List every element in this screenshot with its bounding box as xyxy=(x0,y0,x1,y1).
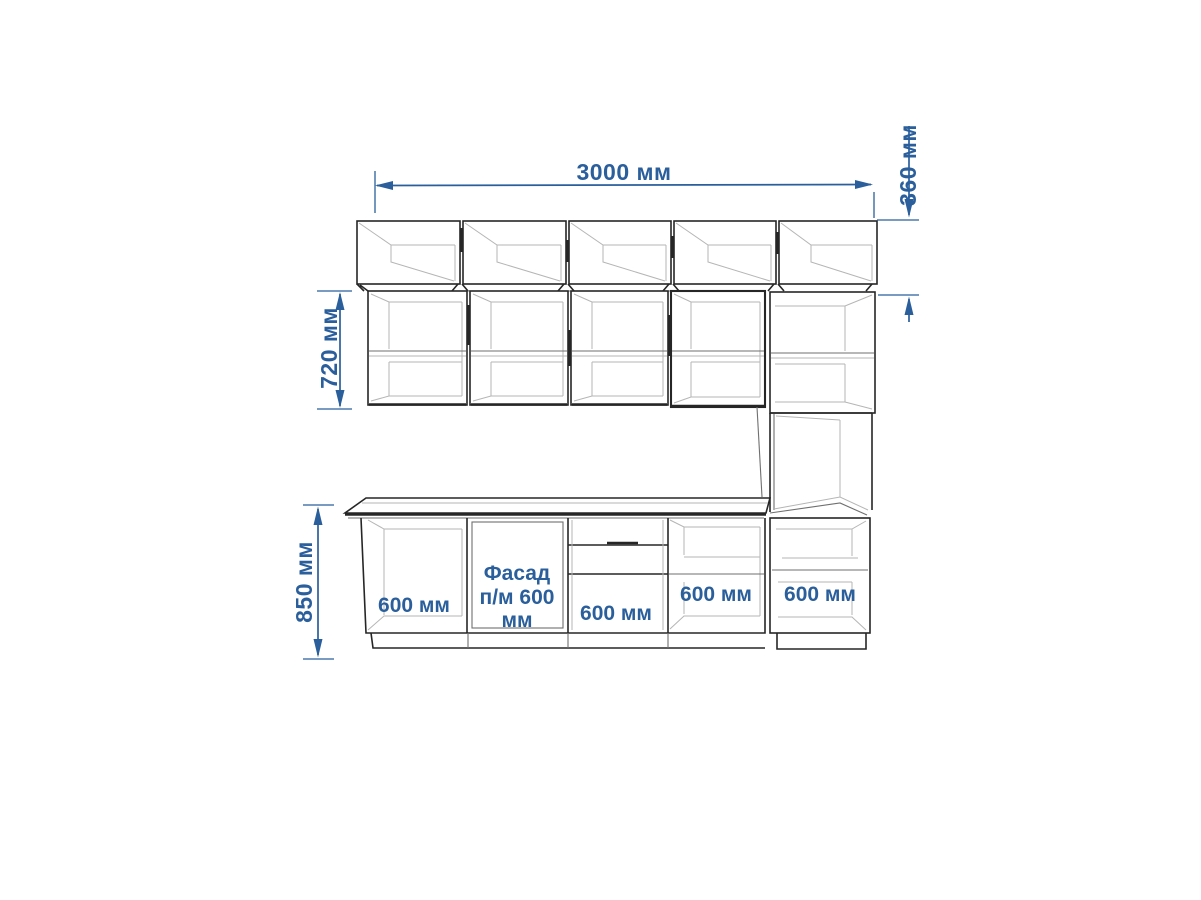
base-plinth xyxy=(371,633,765,648)
dimension-label-360: 360 мм xyxy=(895,124,921,206)
drawing-canvas: 600 мм 600 мм Фасад п/м 600 мм xyxy=(0,0,1201,900)
countertop xyxy=(345,498,770,518)
dimension-total-width: 3000 мм xyxy=(375,159,874,218)
top-cabinet-box xyxy=(463,221,566,284)
dimension-label-850: 850 мм xyxy=(291,541,317,623)
top-cabinet-box xyxy=(779,221,877,284)
arrow-up-icon xyxy=(314,507,323,526)
top-cabinet-box xyxy=(569,221,671,284)
label-base-section-3: 600 мм xyxy=(580,602,652,625)
base-section-drawers: 600 мм xyxy=(568,520,668,630)
top-cabinet-box xyxy=(674,221,776,284)
wall-cabinet xyxy=(470,291,568,405)
label-base-section-4: 600 мм xyxy=(680,583,752,606)
label-column-base: 600 мм xyxy=(784,583,856,606)
arrow-right-icon xyxy=(855,180,873,189)
column-side-edge xyxy=(757,407,762,497)
wall-cabinet xyxy=(368,291,467,405)
tall-column: 600 мм xyxy=(757,292,875,649)
dimension-top-cabinet-height: 360 мм xyxy=(877,124,921,322)
arrow-down-icon xyxy=(314,639,323,658)
wall-cabinet-door xyxy=(671,291,765,407)
base-cabinet-row: 600 мм Фасад п/м 600 мм 600 мм 600 мм xyxy=(361,518,765,648)
wall-cabinet-row xyxy=(368,291,765,407)
arrow-down-icon xyxy=(905,199,914,218)
base-section-shelf: 600 мм xyxy=(669,520,764,629)
column-base-cabinet: 600 мм xyxy=(770,503,870,633)
kitchen-elevation-drawing: 600 мм 600 мм Фасад п/м 600 мм xyxy=(0,0,1201,900)
dimension-label-720: 720 мм xyxy=(316,307,342,389)
column-open-niche xyxy=(770,413,872,512)
label-base-section-1: 600 мм xyxy=(378,594,450,617)
column-plinth xyxy=(777,633,866,649)
dimension-wall-cabinet-height: 720 мм xyxy=(316,291,352,409)
base-section-open: 600 мм xyxy=(368,520,462,630)
top-cabinet-row xyxy=(357,221,877,291)
arrow-left-icon xyxy=(375,181,393,190)
cabinet-connectors xyxy=(357,284,872,291)
base-section-facade: Фасад п/м 600 мм xyxy=(472,522,563,632)
label-base-section-2-line3: мм xyxy=(501,609,532,632)
dimension-base-cabinet-height: 850 мм xyxy=(291,505,334,659)
top-cabinet-box xyxy=(357,221,460,284)
arrow-up-icon xyxy=(336,292,345,310)
column-shelf-cabinet xyxy=(770,292,875,413)
dimension-label-3000: 3000 мм xyxy=(576,159,671,185)
label-base-section-2-line1: Фасад xyxy=(484,562,551,585)
label-base-section-2-line2: п/м 600 xyxy=(480,586,555,609)
wall-cabinet xyxy=(571,291,668,405)
arrow-up-icon xyxy=(905,297,914,316)
arrow-down-icon xyxy=(336,390,345,408)
